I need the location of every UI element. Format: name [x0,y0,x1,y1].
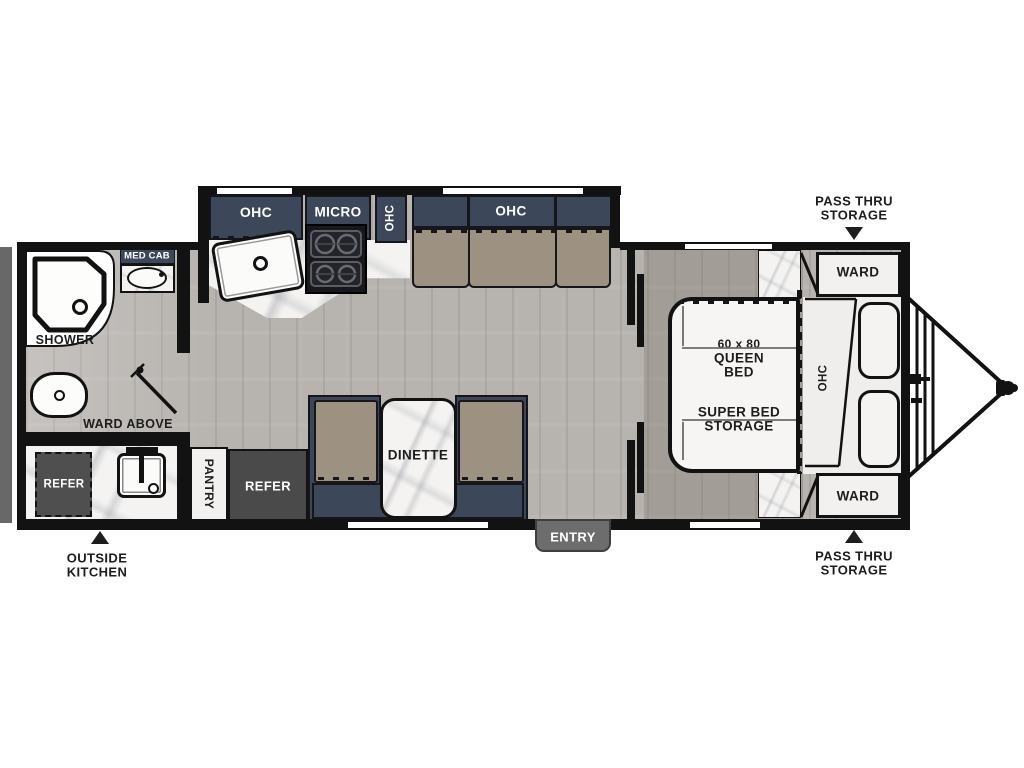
window-living-bottom [348,522,488,528]
bed-storage-label-1: SUPER BED [698,405,780,419]
arrow-up-icon-right [845,530,863,543]
bed-head-seam [678,301,796,304]
sofa-seam [416,230,608,233]
dinette-seam-left [318,477,374,480]
outside-sink-faucet-bar [126,447,158,455]
wall-slide-right [610,186,620,248]
tongue-jack-arm [921,377,930,381]
pass-thru-top-label-2: STORAGE [821,209,888,222]
wall-bath-bottom [17,432,190,446]
arrow-up-icon-left [91,531,109,544]
bed-word-label: BED [724,365,754,379]
vanity-sink [127,267,167,289]
micro-label: MICRO [315,205,362,219]
pass-thru-bottom-label-1: PASS THRU [815,550,893,563]
kitchen-ohc-side-label: OHC [385,205,397,232]
tongue-rail-bottom [907,391,1004,478]
pantry-label: PANTRY [203,459,215,509]
toilet-flush [54,390,65,401]
front-cushion-bottom [858,390,900,468]
window-slide-1 [217,188,292,194]
bedroom-marble-bottom [758,471,801,518]
partition-bar-d [627,440,635,520]
outside-kitchen-label-2: KITCHEN [67,566,128,579]
window-slide-2 [443,188,583,194]
wall-bath-right [177,246,190,353]
ward-top-label: WARD [837,265,880,279]
dinette-seam-right [462,477,520,480]
pass-thru-bottom-label-2: STORAGE [821,564,888,577]
rear-bumper [0,247,12,523]
kitchen-ohc-label: OHC [240,205,272,219]
wall-rear [17,242,26,530]
outside-sink-faucet-stem [139,455,144,483]
hitch-tip [1010,384,1018,392]
arrow-down-icon [845,227,863,240]
sofa-ohc-divider-2 [554,196,557,227]
rv-floorplan: MED CAB WARD ABOVE REFER PANTRY REFER OH… [0,0,1024,768]
partition-bar-a [627,248,635,325]
stove [305,224,367,294]
wall-pantry-left [177,446,190,524]
window-bedroom-top [685,244,772,249]
bed-size-label: 60 x 80 [718,338,761,350]
tongue-rail-top [907,297,1004,385]
sofa-cushion-1 [412,228,470,288]
bed-type-label: QUEEN [714,351,764,365]
sofa-cushion-3 [555,228,611,288]
kitchen-sink-drain [253,256,268,271]
partition-bar-b [637,274,644,347]
partition-bar-c [637,422,644,493]
wall-slide-left [198,186,209,303]
outside-refer-label: REFER [44,479,85,491]
outside-sink-drain [148,483,159,494]
hitch-coupler [996,380,1006,396]
outside-kitchen-label-1: OUTSIDE [67,552,128,565]
front-cushion-top [858,302,900,379]
entry-label: ENTRY [550,531,596,544]
bedroom-ohc-label: OHC [818,365,830,392]
tongue-jack-foot [911,398,922,403]
shower-label: SHOWER [36,334,95,347]
bedroom-marble-top [758,250,801,299]
refer-label: REFER [245,480,291,493]
ward-above-label: WARD ABOVE [83,418,173,431]
ward-bottom-label: WARD [837,489,880,503]
wall-front [901,242,910,530]
hitch-ball [1001,381,1015,395]
bed-storage-label-2: STORAGE [704,419,773,433]
med-cab-label: MED CAB [124,251,170,261]
pass-thru-top-label-1: PASS THRU [815,195,893,208]
sofa-ohc-divider-1 [467,196,470,227]
sofa-ohc-label: OHC [495,204,526,218]
bed-fold-dashed-line [797,290,802,474]
vanity-faucet [159,272,164,277]
window-bedroom-bottom [690,522,760,528]
queen-bed [668,297,800,473]
dinette-cushion-right [458,400,524,483]
dinette-cushion-left [314,400,378,483]
sofa-cushion-2 [468,228,557,288]
dinette-label: DINETTE [388,448,449,462]
